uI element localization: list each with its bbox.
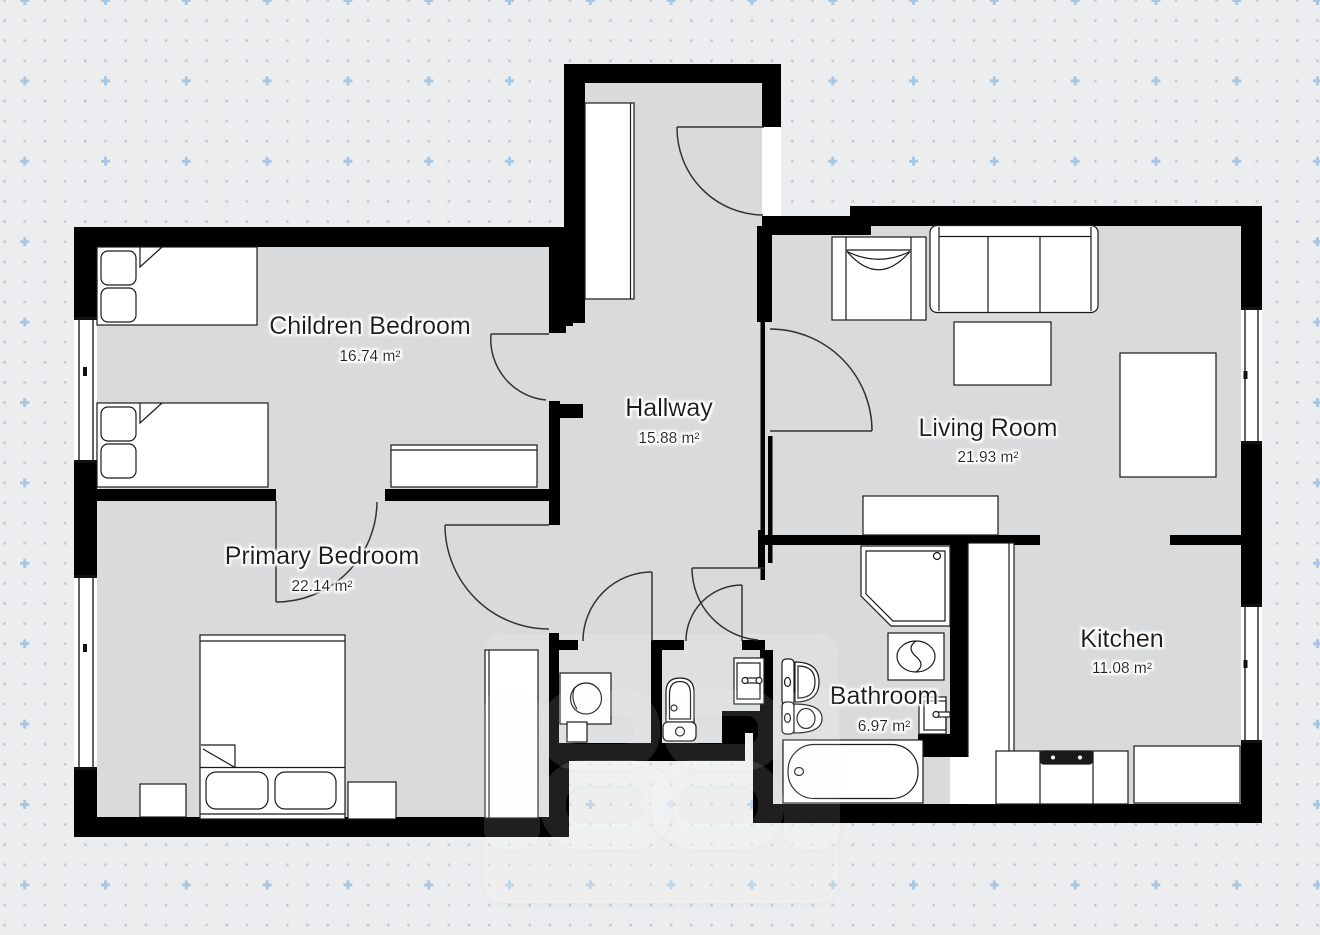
svg-text:21.93 m²: 21.93 m² xyxy=(957,449,1018,466)
svg-text:16.74 m²: 16.74 m² xyxy=(339,348,400,365)
svg-text:22.14 m²: 22.14 m² xyxy=(291,578,352,595)
svg-text:6.97 m²: 6.97 m² xyxy=(858,718,911,735)
svg-text:15.88 m²: 15.88 m² xyxy=(638,430,699,447)
svg-text:Bathroom: Bathroom xyxy=(830,682,938,710)
svg-text:Kitchen: Kitchen xyxy=(1080,625,1163,653)
svg-text:Living Room: Living Room xyxy=(919,414,1058,442)
svg-text:Children Bedroom: Children Bedroom xyxy=(269,312,471,340)
svg-text:11.08 m²: 11.08 m² xyxy=(1092,660,1152,677)
svg-text:Primary Bedroom: Primary Bedroom xyxy=(225,542,420,570)
svg-text:Hallway: Hallway xyxy=(625,394,713,422)
